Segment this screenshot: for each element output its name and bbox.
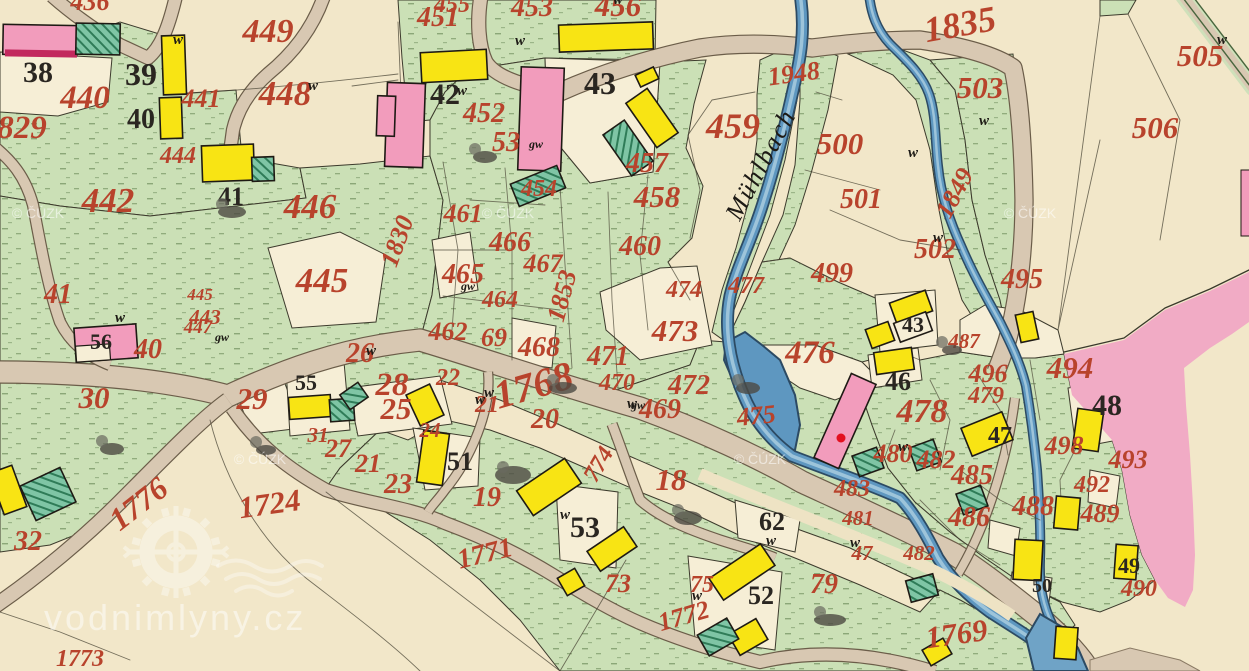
svg-text:19: 19: [473, 482, 501, 513]
svg-text:18: 18: [656, 462, 688, 497]
svg-text:40: 40: [127, 104, 155, 135]
svg-text:30: 30: [78, 380, 110, 415]
svg-text:474: 474: [665, 277, 702, 303]
svg-text:46: 46: [885, 367, 911, 396]
svg-text:53: 53: [492, 127, 520, 158]
svg-text:475: 475: [734, 399, 777, 432]
svg-text:499: 499: [810, 258, 853, 289]
svg-text:446: 446: [283, 187, 337, 226]
svg-text:w: w: [933, 230, 944, 246]
svg-text:458: 458: [633, 179, 681, 214]
svg-text:w: w: [457, 83, 468, 99]
svg-text:448: 448: [258, 74, 312, 113]
svg-text:gw: gw: [630, 398, 646, 412]
svg-text:w: w: [560, 507, 571, 523]
svg-text:468: 468: [517, 332, 560, 363]
svg-text:449: 449: [242, 13, 294, 50]
svg-text:457: 457: [625, 148, 669, 179]
svg-text:38: 38: [23, 56, 53, 89]
svg-text:w: w: [366, 343, 377, 359]
svg-text:461: 461: [443, 199, 483, 228]
svg-text:gw: gw: [460, 279, 476, 293]
svg-text:24: 24: [419, 418, 441, 442]
svg-text:w: w: [979, 113, 990, 129]
svg-text:w: w: [898, 439, 909, 455]
svg-text:gw: gw: [528, 137, 544, 151]
svg-text:w: w: [613, 0, 624, 8]
svg-text:53: 53: [570, 511, 600, 544]
svg-text:493: 493: [1108, 445, 1148, 474]
svg-text:39: 39: [125, 56, 157, 92]
svg-text:21: 21: [354, 449, 381, 478]
svg-text:69: 69: [481, 323, 507, 352]
svg-text:490: 490: [1120, 576, 1157, 602]
svg-text:486: 486: [947, 502, 990, 533]
svg-text:32: 32: [13, 526, 42, 557]
svg-text:459: 459: [705, 106, 760, 146]
svg-text:43: 43: [902, 312, 924, 337]
svg-text:73: 73: [605, 569, 631, 598]
svg-text:471: 471: [586, 341, 629, 372]
svg-text:51: 51: [447, 447, 473, 476]
svg-text:43: 43: [584, 65, 616, 101]
svg-text:56: 56: [90, 329, 112, 354]
svg-text:47: 47: [988, 423, 1012, 449]
svg-text:473: 473: [651, 313, 699, 348]
svg-text:440: 440: [59, 80, 110, 116]
svg-text:w: w: [908, 145, 919, 161]
svg-text:506: 506: [1132, 110, 1179, 145]
svg-text:460: 460: [618, 231, 661, 262]
svg-text:20: 20: [530, 404, 559, 435]
svg-text:479: 479: [967, 383, 1004, 409]
svg-text:455: 455: [433, 0, 470, 18]
svg-text:w: w: [173, 32, 184, 48]
svg-text:w: w: [115, 310, 126, 326]
svg-text:© ČÚZK: © ČÚZK: [1004, 205, 1057, 221]
svg-text:79: 79: [810, 569, 838, 600]
svg-text:w: w: [515, 33, 526, 49]
svg-text:23: 23: [383, 469, 412, 500]
svg-text:© ČÚZK: © ČÚZK: [12, 205, 65, 221]
svg-text:482: 482: [916, 445, 956, 474]
svg-text:w: w: [850, 535, 861, 551]
svg-text:48: 48: [1092, 389, 1122, 422]
svg-text:w: w: [484, 385, 495, 401]
svg-text:© ČÚZK: © ČÚZK: [234, 451, 287, 467]
svg-text:453: 453: [510, 0, 553, 23]
svg-text:40: 40: [133, 334, 162, 365]
svg-text:498: 498: [1044, 431, 1084, 460]
svg-text:470: 470: [598, 370, 635, 396]
svg-text:464: 464: [481, 287, 518, 313]
svg-text:476: 476: [784, 335, 835, 371]
svg-text:w: w: [692, 588, 703, 604]
svg-text:501: 501: [840, 184, 882, 215]
svg-text:481: 481: [841, 506, 874, 530]
svg-text:482: 482: [902, 541, 935, 565]
svg-text:© ČÚZK: © ČÚZK: [734, 451, 787, 467]
svg-text:441: 441: [181, 84, 221, 113]
svg-text:436: 436: [70, 0, 110, 16]
svg-text:442: 442: [81, 181, 135, 220]
svg-text:42: 42: [430, 78, 460, 111]
svg-text:50: 50: [1032, 575, 1052, 597]
svg-text:49: 49: [1118, 553, 1140, 578]
svg-text:485: 485: [950, 460, 993, 491]
svg-text:500: 500: [817, 126, 864, 161]
svg-text:488: 488: [1011, 491, 1054, 522]
svg-text:445: 445: [186, 285, 213, 304]
svg-text:447: 447: [183, 317, 214, 338]
svg-text:477: 477: [727, 273, 765, 299]
svg-text:483: 483: [833, 476, 870, 502]
svg-text:w: w: [308, 78, 319, 94]
svg-text:492: 492: [1073, 472, 1110, 498]
svg-text:462: 462: [428, 317, 468, 346]
svg-text:31: 31: [307, 423, 329, 447]
svg-text:41: 41: [43, 279, 72, 310]
svg-text:w: w: [766, 533, 777, 549]
svg-text:22: 22: [435, 365, 460, 391]
svg-text:29: 29: [236, 381, 268, 416]
svg-text:494: 494: [1046, 350, 1094, 385]
svg-text:62: 62: [759, 507, 785, 536]
svg-text:452: 452: [462, 98, 505, 129]
svg-text:478: 478: [896, 393, 948, 430]
svg-text:25: 25: [380, 391, 412, 426]
svg-text:© ČÚZK: © ČÚZK: [482, 205, 535, 221]
svg-text:w: w: [1217, 32, 1228, 48]
svg-text:829: 829: [0, 110, 47, 146]
svg-text:vodnimlyny.cz: vodnimlyny.cz: [44, 597, 306, 638]
svg-text:1773: 1773: [56, 646, 104, 671]
svg-text:495: 495: [1000, 264, 1043, 295]
svg-text:52: 52: [748, 581, 774, 610]
svg-text:445: 445: [295, 261, 349, 300]
svg-text:454: 454: [520, 176, 557, 202]
svg-text:489: 489: [1080, 499, 1120, 528]
svg-text:55: 55: [295, 370, 317, 395]
svg-text:444: 444: [159, 143, 196, 169]
svg-text:gw: gw: [214, 330, 230, 344]
svg-text:503: 503: [957, 70, 1004, 105]
